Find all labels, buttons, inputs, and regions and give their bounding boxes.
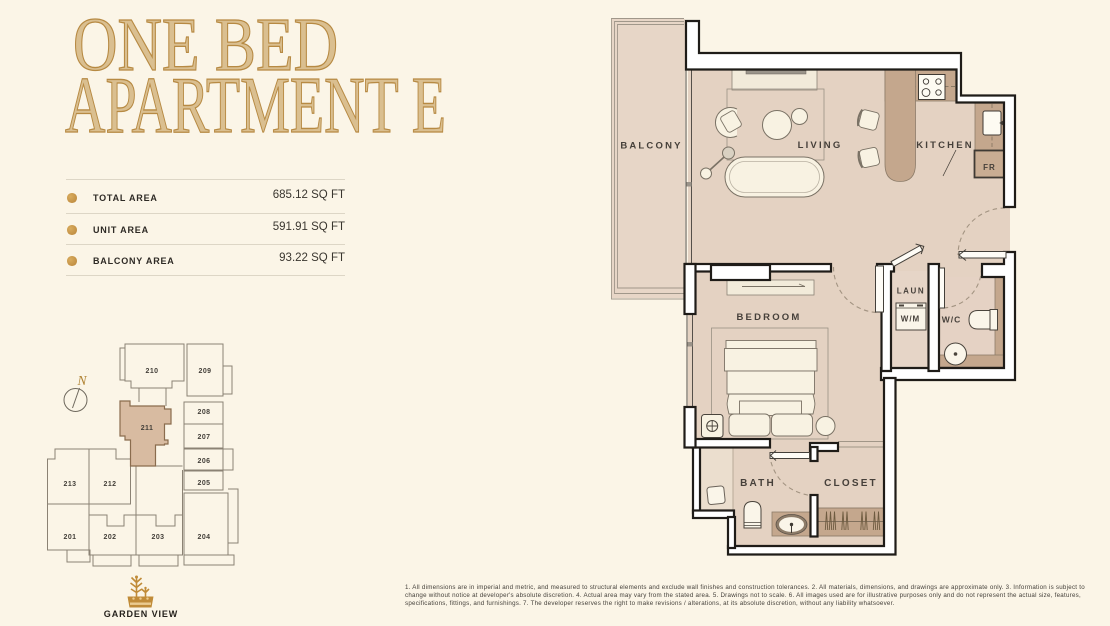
svg-text:LAUN: LAUN xyxy=(897,287,926,296)
svg-text:CLOSET: CLOSET xyxy=(824,478,878,489)
svg-text:BEDROOM: BEDROOM xyxy=(736,312,801,323)
svg-text:W/M: W/M xyxy=(901,315,920,324)
svg-text:BATH: BATH xyxy=(740,478,776,489)
svg-text:BALCONY: BALCONY xyxy=(620,141,682,152)
svg-text:KITCHEN: KITCHEN xyxy=(916,140,974,151)
svg-text:FR: FR xyxy=(983,163,996,172)
svg-text:W/C: W/C xyxy=(942,315,962,325)
svg-text:LIVING: LIVING xyxy=(798,140,843,151)
